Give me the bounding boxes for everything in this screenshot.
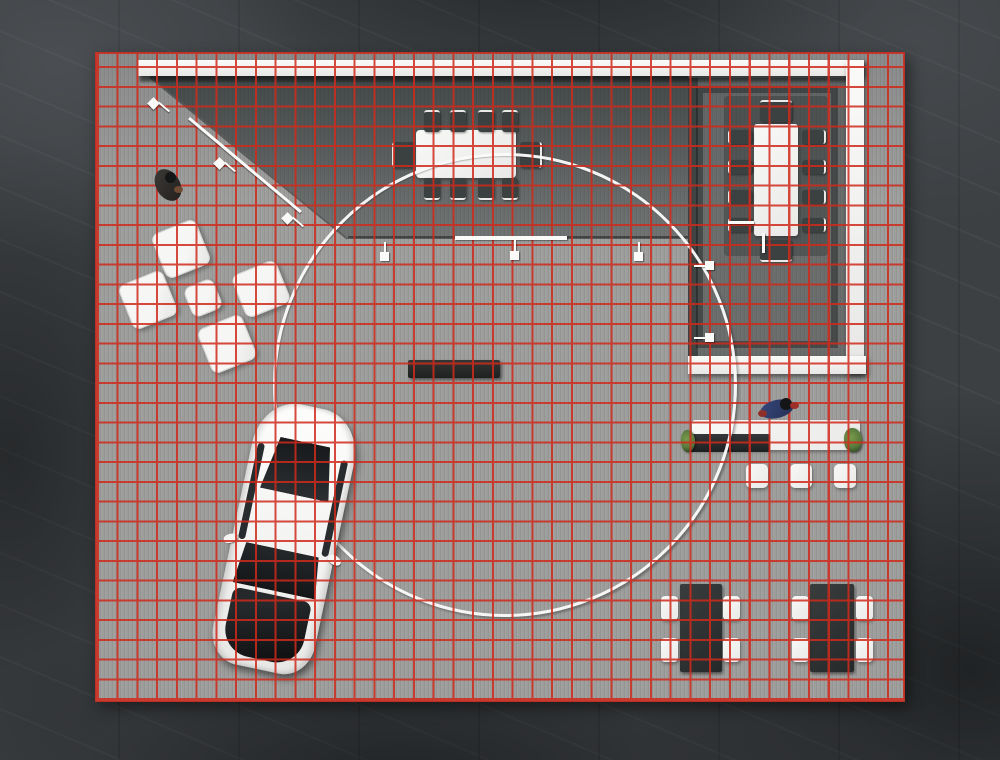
conference-chair — [502, 110, 518, 132]
reception-stool — [834, 464, 856, 488]
meeting-chair — [802, 190, 826, 204]
spotlight-icon — [380, 252, 389, 261]
back-wall — [138, 60, 864, 76]
visitor-body — [149, 164, 187, 205]
conference-chair — [424, 110, 440, 132]
spotlight-icon — [705, 261, 714, 270]
light-bar — [455, 236, 567, 240]
light-bar — [762, 233, 765, 253]
cafe-chair — [856, 638, 873, 662]
spotlight-icon — [705, 333, 714, 342]
visitor-figure — [150, 160, 190, 206]
scene-viewport[interactable] — [0, 0, 1000, 760]
meeting-chair — [760, 100, 792, 122]
spotlight-icon — [634, 252, 643, 261]
right-wall — [846, 60, 864, 374]
meeting-chair — [728, 190, 752, 204]
cafe-table — [680, 584, 722, 672]
cafe-chair — [792, 596, 809, 620]
visitor-head — [165, 172, 176, 183]
reception-stool — [746, 464, 768, 488]
conference-chair — [392, 142, 414, 168]
meeting-chair — [802, 130, 826, 144]
light-bar — [728, 221, 754, 224]
conference-chair — [450, 110, 466, 132]
meeting-chair — [728, 130, 752, 144]
staff-figure — [758, 390, 806, 426]
meeting-chair — [728, 160, 752, 174]
cafe-chair — [661, 638, 678, 662]
plant — [844, 428, 862, 452]
conference-chair — [478, 110, 494, 132]
meeting-chair — [802, 160, 826, 174]
cafe-chair — [856, 596, 873, 620]
cafe-chair — [723, 596, 740, 620]
staff-cap — [790, 402, 799, 409]
meeting-table — [754, 124, 798, 236]
cafe-table — [810, 584, 854, 672]
cafe-chair — [723, 638, 740, 662]
spotlight-icon — [510, 251, 519, 260]
reception-stool — [790, 464, 812, 488]
staff-red-accent — [758, 410, 767, 417]
cafe-chair — [661, 596, 678, 620]
meeting-chair — [802, 218, 826, 232]
cafe-chair — [792, 638, 809, 662]
visitor-arm — [174, 186, 183, 193]
